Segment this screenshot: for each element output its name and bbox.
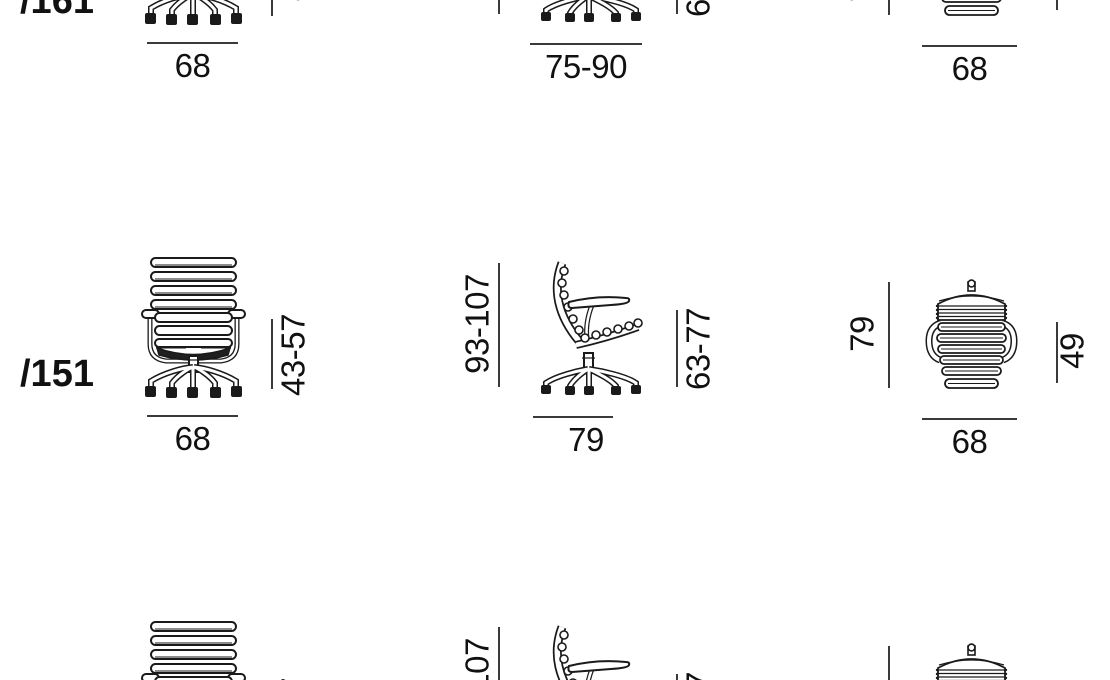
overall-height-label: 93-107 <box>461 0 494 1</box>
top-depth-dim-line <box>888 0 890 15</box>
seat-depth-dim-line <box>1056 0 1058 10</box>
chair-side-view-drawing <box>532 625 645 680</box>
top-width-dim-line <box>922 45 1017 47</box>
top-width-dim-line <box>922 418 1017 420</box>
chair-front-view-drawing <box>142 621 245 680</box>
top-width-label: 68 <box>922 52 1017 85</box>
model-row-151: /151 68 43-57 93-107 63-77 79 79 49 68 <box>0 227 1110 480</box>
top-depth-dim-line <box>888 646 890 680</box>
front-width-label: 68 <box>147 422 238 455</box>
seat-height-label: 43-57 <box>277 0 310 1</box>
arm-height-dim-line <box>676 0 678 14</box>
dimension-drawing-sheet: /161 68 43-57 93-107 63-77 75-90 75-90 4… <box>0 0 1110 680</box>
top-width-label: 68 <box>922 425 1017 458</box>
chair-side-view-drawing <box>532 0 645 21</box>
top-depth-label: 79 <box>846 316 879 352</box>
model-row-next: 68 43-57 93-107 63-77 79 79 49 68 <box>0 591 1110 680</box>
seat-height-label: 43-57 <box>277 314 310 396</box>
arm-height-dim-line <box>676 674 678 680</box>
overall-height-dim-line <box>498 263 500 387</box>
overall-height-dim-line <box>498 627 500 680</box>
top-depth-label: 75-90 <box>846 0 879 2</box>
arm-height-label: 63-77 <box>682 0 715 17</box>
seat-depth-label: 49 <box>1056 333 1089 369</box>
depth-dim-line <box>533 416 613 418</box>
depth-dim-line <box>530 43 642 45</box>
chair-front-view-drawing <box>142 0 245 25</box>
overall-height-dim-line <box>498 0 500 14</box>
seat-height-dim-line <box>271 319 273 389</box>
depth-label: 75-90 <box>540 50 632 83</box>
chair-top-view-drawing <box>926 643 1017 680</box>
model-row-161: /161 68 43-57 93-107 63-77 75-90 75-90 4… <box>0 0 1110 107</box>
overall-height-label: 93-107 <box>461 638 494 680</box>
overall-height-label: 93-107 <box>461 274 494 374</box>
model-label: /151 <box>20 355 94 393</box>
front-width-label: 68 <box>147 49 238 82</box>
chair-side-view-drawing <box>532 261 645 394</box>
arm-height-dim-line <box>676 310 678 387</box>
arm-height-label: 63-77 <box>682 672 715 680</box>
arm-height-label: 63-77 <box>682 308 715 390</box>
front-width-dim-line <box>147 415 238 417</box>
chair-front-view-drawing <box>142 257 245 398</box>
depth-label: 79 <box>540 423 632 456</box>
chair-top-view-drawing <box>926 279 1017 390</box>
front-width-dim-line <box>147 42 238 44</box>
seat-height-dim-line <box>271 0 273 16</box>
top-depth-dim-line <box>888 282 890 388</box>
chair-top-view-drawing <box>926 0 1017 17</box>
model-label: /161 <box>20 0 94 20</box>
